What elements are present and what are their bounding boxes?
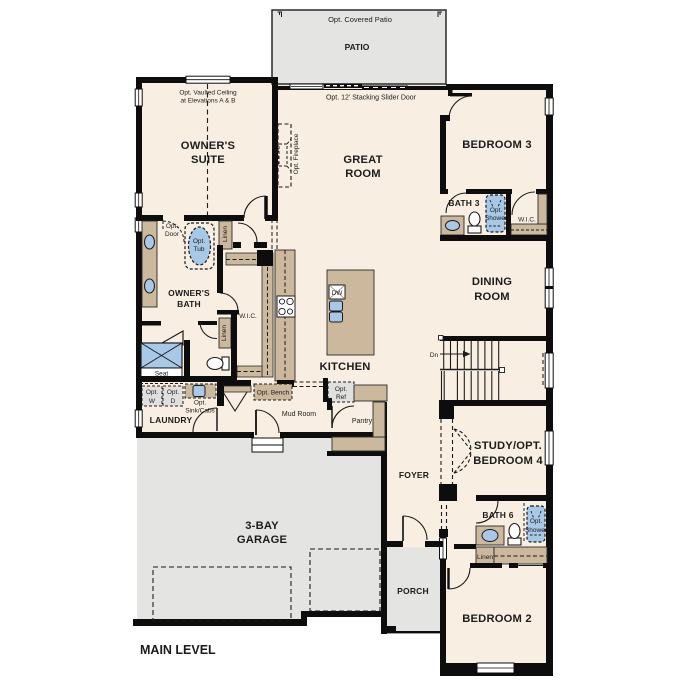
svg-text:BATH: BATH: [177, 299, 201, 309]
svg-text:FOYER: FOYER: [399, 470, 429, 480]
svg-text:Dn: Dn: [430, 352, 439, 359]
svg-text:Opt. Vaulted Ceiling: Opt. Vaulted Ceiling: [179, 90, 237, 97]
svg-text:Opt.: Opt.: [335, 386, 347, 393]
svg-text:BATH 3: BATH 3: [448, 198, 479, 208]
svg-text:Pantry: Pantry: [352, 418, 373, 425]
svg-text:Opt.: Opt.: [490, 207, 502, 214]
svg-text:Linen: Linen: [477, 554, 493, 561]
svg-text:DINING: DINING: [472, 276, 512, 288]
svg-text:MAIN LEVEL: MAIN LEVEL: [140, 643, 216, 657]
svg-text:Mud Room: Mud Room: [282, 411, 316, 418]
svg-text:Linen: Linen: [221, 325, 228, 341]
svg-text:PORCH: PORCH: [397, 586, 429, 596]
svg-text:Shower: Shower: [525, 527, 548, 534]
svg-text:Sink/Cabs: Sink/Cabs: [185, 408, 215, 415]
svg-text:W.I.C.: W.I.C.: [518, 217, 536, 224]
svg-text:PATIO: PATIO: [345, 42, 370, 52]
svg-text:Ref: Ref: [336, 394, 346, 401]
svg-text:ROOM: ROOM: [474, 291, 510, 303]
svg-text:OWNER'S: OWNER'S: [168, 288, 210, 298]
svg-text:Linen: Linen: [222, 226, 229, 242]
svg-text:Opt.: Opt.: [530, 518, 542, 525]
svg-text:Opt.: Opt.: [166, 223, 178, 230]
svg-text:OWNER'S: OWNER'S: [181, 140, 236, 152]
svg-text:STUDY/OPT.: STUDY/OPT.: [474, 440, 542, 452]
svg-text:GREAT: GREAT: [343, 154, 382, 166]
svg-text:BATH 6: BATH 6: [482, 510, 513, 520]
svg-text:Opt. Bench: Opt. Bench: [257, 390, 290, 397]
svg-text:3-BAY: 3-BAY: [245, 520, 279, 532]
svg-text:KITCHEN: KITCHEN: [319, 361, 370, 373]
svg-text:SUITE: SUITE: [191, 154, 225, 166]
svg-text:DW: DW: [332, 290, 344, 297]
svg-text:W: W: [149, 398, 156, 405]
svg-text:Opt.: Opt.: [146, 389, 158, 396]
svg-text:LAUNDRY: LAUNDRY: [150, 415, 193, 425]
svg-text:Tub: Tub: [194, 246, 205, 253]
svg-text:BEDROOM 3: BEDROOM 3: [462, 139, 532, 151]
svg-text:Opt. Covered Patio: Opt. Covered Patio: [328, 15, 392, 24]
svg-text:Opt.: Opt.: [167, 389, 179, 396]
svg-text:Opt.: Opt.: [193, 238, 205, 245]
svg-text:Shower: Shower: [485, 215, 508, 222]
svg-text:BEDROOM 4: BEDROOM 4: [473, 455, 543, 467]
svg-text:Opt. Fireplace: Opt. Fireplace: [293, 133, 300, 174]
svg-text:W.I.C.: W.I.C.: [239, 313, 257, 320]
svg-text:Opt. 12' Stacking Slider Door: Opt. 12' Stacking Slider Door: [326, 95, 417, 102]
svg-text:D: D: [171, 398, 176, 405]
svg-text:GARAGE: GARAGE: [237, 534, 288, 546]
svg-text:ROOM: ROOM: [345, 168, 381, 180]
svg-text:Door: Door: [165, 231, 180, 238]
svg-text:BEDROOM 2: BEDROOM 2: [462, 613, 532, 625]
svg-text:Opt.: Opt.: [194, 400, 206, 407]
